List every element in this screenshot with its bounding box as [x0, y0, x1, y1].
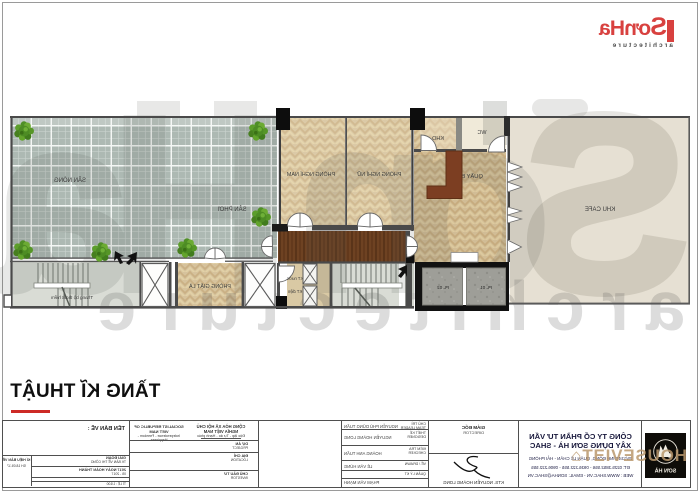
svg-text:KHU CAFE: KHU CAFE: [585, 207, 615, 213]
svg-text:PHÒNG GIẶT LÀ: PHÒNG GIẶT LÀ: [189, 283, 231, 290]
svg-text:SƠN HÀ: SƠN HÀ: [655, 467, 677, 474]
svg-text:KT điện: KT điện: [287, 289, 302, 294]
svg-text:PHÒNG NGHỈ NAM: PHÒNG NGHỈ NAM: [286, 171, 335, 178]
svg-text:SÂN NÓNG: SÂN NÓNG: [54, 177, 86, 184]
svg-text:PL 01: PL 01: [480, 285, 492, 290]
svg-text:PL 02: PL 02: [437, 285, 449, 290]
svg-text:KT nước: KT nước: [287, 276, 303, 281]
svg-text:SÂN PHƠI: SÂN PHƠI: [217, 206, 246, 213]
svg-text:Thang bộ thoát hiểm: Thang bộ thoát hiểm: [51, 294, 93, 300]
svg-text:KHO: KHO: [432, 136, 444, 142]
svg-text:WC: WC: [477, 130, 486, 136]
svg-text:PHÒNG NGHỈ NỮ: PHÒNG NGHỈ NỮ: [356, 171, 401, 178]
